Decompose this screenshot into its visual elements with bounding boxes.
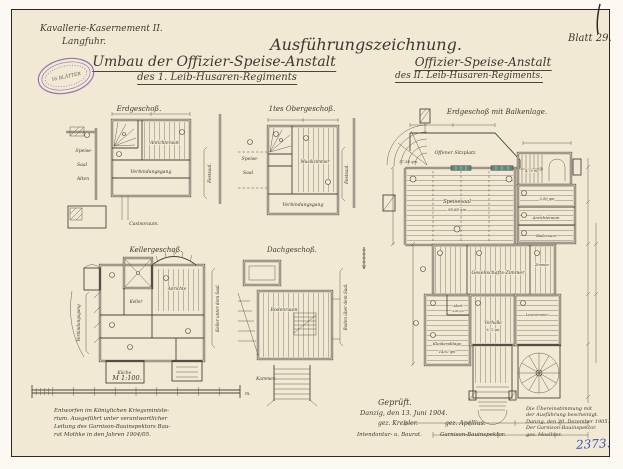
role-left: Intendantur- u. Baurat. [357, 432, 422, 438]
certification-note: Die Übereinstimmung mit der Ausführung b… [526, 406, 609, 438]
plan5-fan-steps [387, 109, 430, 165]
plan5-label-speisesaal-qm: 58,68 qm [448, 207, 467, 212]
plan2-label-saal: Saal [243, 170, 254, 176]
plan-obergeschoss: 1tes Obergeschoß. Speise- Saal Musikzimm… [236, 102, 378, 244]
design-note-line4: rat Mothke in den Jahren 1904/05. [54, 431, 170, 439]
scale-unit: m. [245, 392, 251, 397]
stamp-center-text: 16 BLÄTTER [51, 70, 82, 83]
plan5-spiral-stair [518, 345, 560, 398]
design-note-line3: Leitung des Garnison-Bauinspektors Bau- [54, 423, 170, 431]
corner-pen-mark [588, 2, 610, 36]
langfuhr-label: Langfuhr. [62, 38, 106, 48]
plan5-label-lesezimmer: Lesezimmer [525, 313, 548, 317]
plan5-label-gesellschaft: Gesellschafts-Zimmer [471, 270, 525, 276]
left-subject-line2: des 1. Leib-Husaren-Regiments [137, 72, 297, 83]
plan4-label-kammer: Kammer. [255, 377, 276, 382]
plan1-label-alten: Alten [76, 176, 89, 182]
plan-erdgeschoss-balkenlage: Erdgeschoß mit Balkenlage. Offener Sitzp… [383, 103, 615, 451]
scale-bar: M 1:100. m. [24, 370, 254, 402]
signature-left: gez. Kreisler. [378, 421, 418, 428]
plan4-title: Dachgeschoß. [266, 246, 317, 254]
drawing-sheet: Kavallerie-Kasernement II. Langfuhr. Aus… [0, 0, 623, 469]
left-subject-line1: Umbau der Offizier-Speise-Anstalt [92, 55, 336, 70]
plan5-label-abort: Abort [452, 304, 463, 308]
plan5-label-baderaum: Baderaum [535, 233, 556, 238]
plan2-title: 1tes Obergeschoß. [269, 105, 336, 113]
plan3-label-keller: Keller [129, 299, 144, 304]
plan5-label-vorhalle-qm: 9,72 qm [486, 328, 499, 332]
plan1-side-label: Festsaal. [208, 163, 213, 184]
plan-erdgeschoss-small: Erdgeschoß. Speise- Saal Alten [62, 102, 240, 244]
plan1-stair [114, 122, 136, 146]
plan5-label-kleiderablage: Kleiderablage [432, 341, 462, 346]
plan1-title: Erdgeschoß. [116, 105, 162, 113]
design-note: Entworfen im Königlichen Kriegsministe- … [54, 407, 170, 439]
plan5-label-zimmer1: Zimmer [534, 263, 550, 267]
plan5-label-qm350: 3,50 qm [540, 197, 555, 201]
plan3-label-anrichte: Anrichte [167, 286, 187, 291]
plan4-section-mark [362, 247, 366, 269]
right-subject-line2: des II. Leib-Husaren-Regiments. [395, 72, 543, 82]
main-title: Ausführungszeichnung. [270, 36, 462, 54]
cert-line2: der Ausführung bescheinigt. [526, 412, 609, 418]
plan2-stair [270, 128, 291, 152]
plan1-label-speise: Speise- [76, 148, 93, 154]
design-note-line2: rium. Ausgeführt unter verantwortlicher [54, 415, 170, 423]
plan1-label-casinoraum: Casinoraum. [129, 221, 159, 227]
plan2-side-label: Festsaal. [345, 164, 350, 185]
plan3-gang-label: Verbindungsgang [76, 304, 81, 342]
right-subject-line1: Offizier-Speise-Anstalt [415, 56, 552, 69]
plan5-label-sitzplatz-qm: 17,38 qm [399, 159, 418, 164]
archive-stamp: 16 BLÄTTER [34, 55, 100, 99]
plan5-label-sitzplatz: Offener Sitzplatz [434, 150, 476, 156]
plan5-entrance-porch [469, 345, 516, 425]
kasernement-label: Kavallerie-Kasernement II. [40, 25, 163, 35]
cert-line4: Der Garnison-Bauinspektor. [526, 425, 609, 431]
plan4-side-label: Boden über dem Saal. [343, 284, 348, 332]
right-subject-text1: Offizier-Speise-Anstalt [415, 55, 552, 71]
right-subject-text2: des II. Leib-Husaren-Regiments. [395, 71, 543, 83]
role-right: Garnison-Bauinspektor. [440, 432, 506, 438]
plan2-label-speise: Speise- [242, 156, 259, 162]
plan5-label-speisesaal: Speisesaal [443, 199, 471, 205]
plan5-kleiderablage [425, 295, 470, 365]
plan5-label-treppe-m: 4,79 m [524, 169, 537, 173]
archive-number: 2373. [576, 437, 611, 452]
geprueft-label: Geprüft. [378, 399, 412, 408]
signature-right: gez. Apellius. [445, 421, 486, 428]
plan3-stair [124, 258, 152, 288]
plan2-label-verbindungsgang: Verbindungsgang [283, 202, 324, 208]
left-subject-text2: des 1. Leib-Husaren-Regiments [137, 72, 297, 85]
left-subject-text1: Umbau der Offizier-Speise-Anstalt [92, 54, 336, 72]
plan-dachgeschoss: Dachgeschoß. Bodenraum Kammer. Boden übe… [236, 243, 370, 408]
plan5-label-anrichteraum: Anrichteraum [532, 215, 560, 220]
plan2-label-musikzimmer: Musikzimmer [300, 159, 331, 164]
plan5-title: Erdgeschoß mit Balkenlage. [446, 108, 547, 116]
plan1-label-saal: Saal [77, 162, 88, 168]
sheet-number: Blatt 29. [568, 33, 612, 44]
plan5-label-abort-qm: 4,00 qm [451, 309, 464, 313]
geprueft-date: Danzig, den 13. Juni 1904. [360, 410, 447, 417]
plan4-lower-stair [267, 365, 317, 406]
plan1-label-verbindungsgang: Verbindungsgang [131, 169, 172, 175]
plan3-side-label: Keller unter dem Saal. [215, 284, 220, 333]
plan1-side-bracket [204, 147, 207, 199]
scale-label: M 1:100. [111, 374, 142, 382]
plan3-title: Kellergeschoß. [129, 246, 183, 254]
plan5-gesellschaft-band [433, 245, 555, 295]
scale-bar-lines [32, 385, 240, 398]
design-note-line1: Entworfen im Königlichen Kriegsministe- [54, 407, 170, 415]
plan5-lesezimmer [515, 295, 560, 345]
plan4-label-bodenraum: Bodenraum [269, 307, 298, 313]
plan5-label-vorhalle: Vorhalle [484, 320, 502, 325]
plan5-terrace [410, 123, 520, 168]
plan5-label-kleiderablage-qm: 14,92 qm [439, 350, 455, 354]
plan1-label-anrichteraum: Anrichteraum [149, 140, 179, 145]
